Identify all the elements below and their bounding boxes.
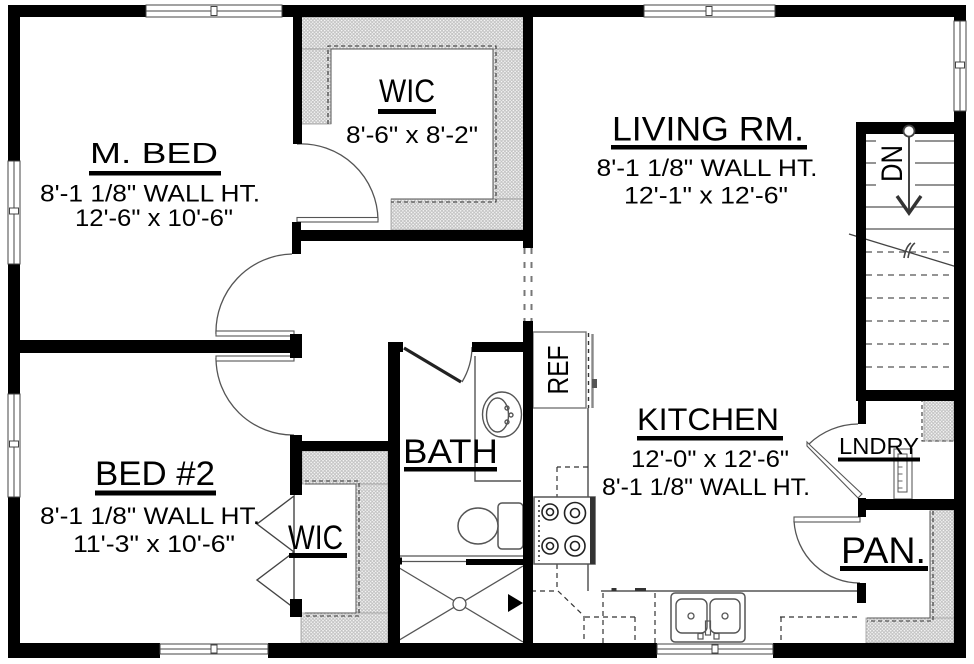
svg-text:LIVING RM.: LIVING RM.	[612, 111, 804, 149]
svg-text:12'-0" x 12'-6": 12'-0" x 12'-6"	[631, 446, 789, 473]
svg-text:DN: DN	[876, 145, 909, 182]
svg-text:LNDRY: LNDRY	[839, 433, 919, 459]
svg-text:12'-6" x 10'-6": 12'-6" x 10'-6"	[75, 205, 233, 232]
svg-text:KITCHEN: KITCHEN	[637, 401, 779, 437]
svg-text:PAN.: PAN.	[841, 530, 926, 571]
svg-text:REF: REF	[543, 346, 575, 395]
svg-text:8'-1 1/8" WALL HT.: 8'-1 1/8" WALL HT.	[597, 155, 818, 182]
svg-text:8'-1 1/8" WALL HT.: 8'-1 1/8" WALL HT.	[40, 503, 260, 530]
svg-text:WIC: WIC	[379, 73, 435, 109]
svg-text:8'-6" x 8'-2": 8'-6" x 8'-2"	[346, 122, 478, 149]
svg-text:12'-1" x 12'-6": 12'-1" x 12'-6"	[624, 183, 788, 210]
svg-text:8'-1 1/8" WALL HT.: 8'-1 1/8" WALL HT.	[602, 474, 810, 501]
svg-text:11'-3" x 10'-6": 11'-3" x 10'-6"	[73, 531, 235, 558]
svg-text:BATH: BATH	[403, 433, 498, 471]
svg-text:M. BED: M. BED	[90, 138, 218, 170]
svg-text:8'-1 1/8" WALL HT.: 8'-1 1/8" WALL HT.	[40, 181, 260, 208]
svg-text:BED #2: BED #2	[95, 455, 215, 493]
svg-text:WIC: WIC	[288, 519, 343, 557]
